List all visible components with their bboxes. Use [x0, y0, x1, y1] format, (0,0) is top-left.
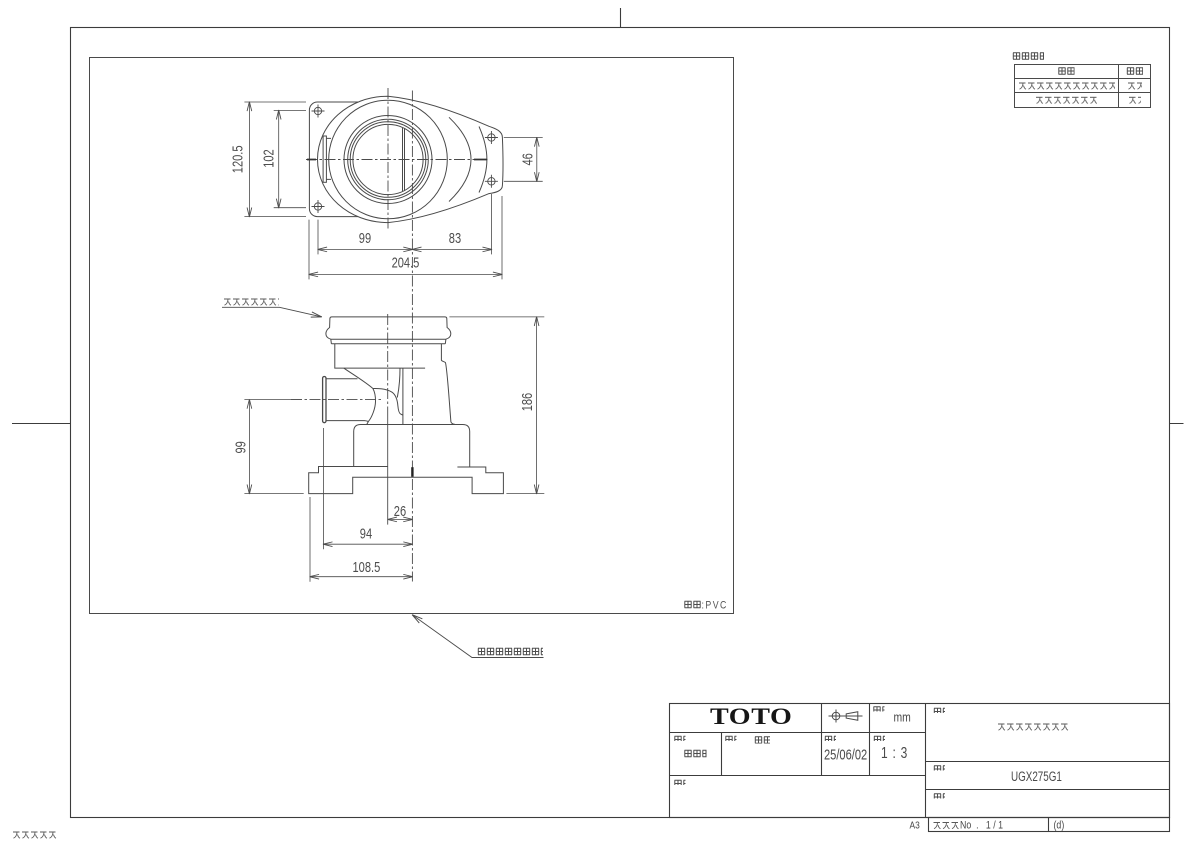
svg-text:mm: mm: [894, 710, 911, 724]
svg-text:No . 1 / 1: No . 1 / 1: [960, 820, 1003, 832]
svg-text:99: 99: [232, 441, 249, 453]
svg-text:99: 99: [359, 229, 371, 246]
svg-text:46: 46: [519, 153, 536, 165]
svg-text:26: 26: [394, 502, 406, 519]
svg-text:83: 83: [449, 229, 461, 246]
svg-text:94: 94: [360, 525, 372, 542]
svg-text:120.5: 120.5: [229, 145, 246, 173]
svg-text:204.5: 204.5: [392, 254, 420, 271]
svg-text:186: 186: [518, 393, 535, 412]
svg-text:A3: A3: [910, 820, 920, 832]
svg-text:102: 102: [260, 149, 277, 168]
svg-text:UGX275G1: UGX275G1: [1011, 768, 1062, 784]
svg-text:TOTO: TOTO: [710, 703, 792, 729]
svg-text:25/06/02: 25/06/02: [824, 746, 867, 763]
svg-text:(d): (d): [1054, 820, 1065, 832]
svg-text:108.5: 108.5: [353, 558, 381, 575]
svg-text:1 : 3: 1 : 3: [881, 743, 908, 761]
svg-text::PVC: :PVC: [702, 600, 728, 612]
